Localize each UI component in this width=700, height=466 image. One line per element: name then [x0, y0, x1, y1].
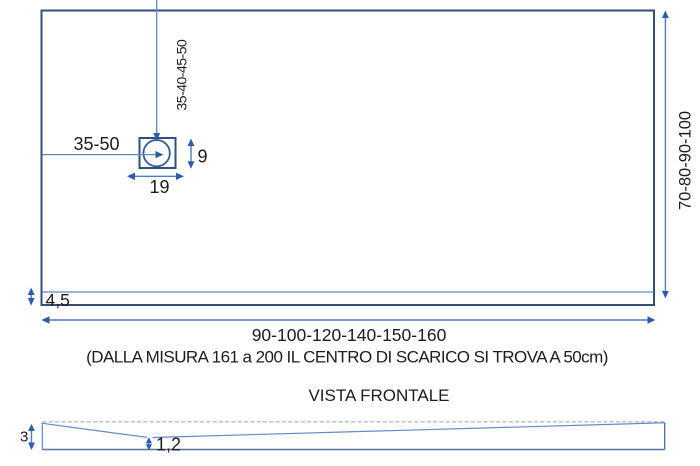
svg-text:35-50: 35-50 — [74, 134, 120, 154]
svg-text:9: 9 — [198, 147, 208, 167]
svg-text:90-100-120-140-150-160: 90-100-120-140-150-160 — [252, 325, 447, 345]
svg-text:1,2: 1,2 — [156, 435, 181, 455]
svg-text:70-80-90-100: 70-80-90-100 — [677, 111, 695, 210]
svg-text:VISTA FRONTALE: VISTA FRONTALE — [308, 386, 449, 405]
svg-text:19: 19 — [150, 177, 170, 197]
svg-text:4,5: 4,5 — [46, 290, 70, 310]
svg-text:3: 3 — [20, 429, 28, 446]
svg-text:35-40-45-50: 35-40-45-50 — [174, 39, 190, 110]
svg-text:(DALLA MISURA 161 a 200 IL CEN: (DALLA MISURA 161 a 200 IL CENTRO DI SCA… — [86, 348, 608, 367]
